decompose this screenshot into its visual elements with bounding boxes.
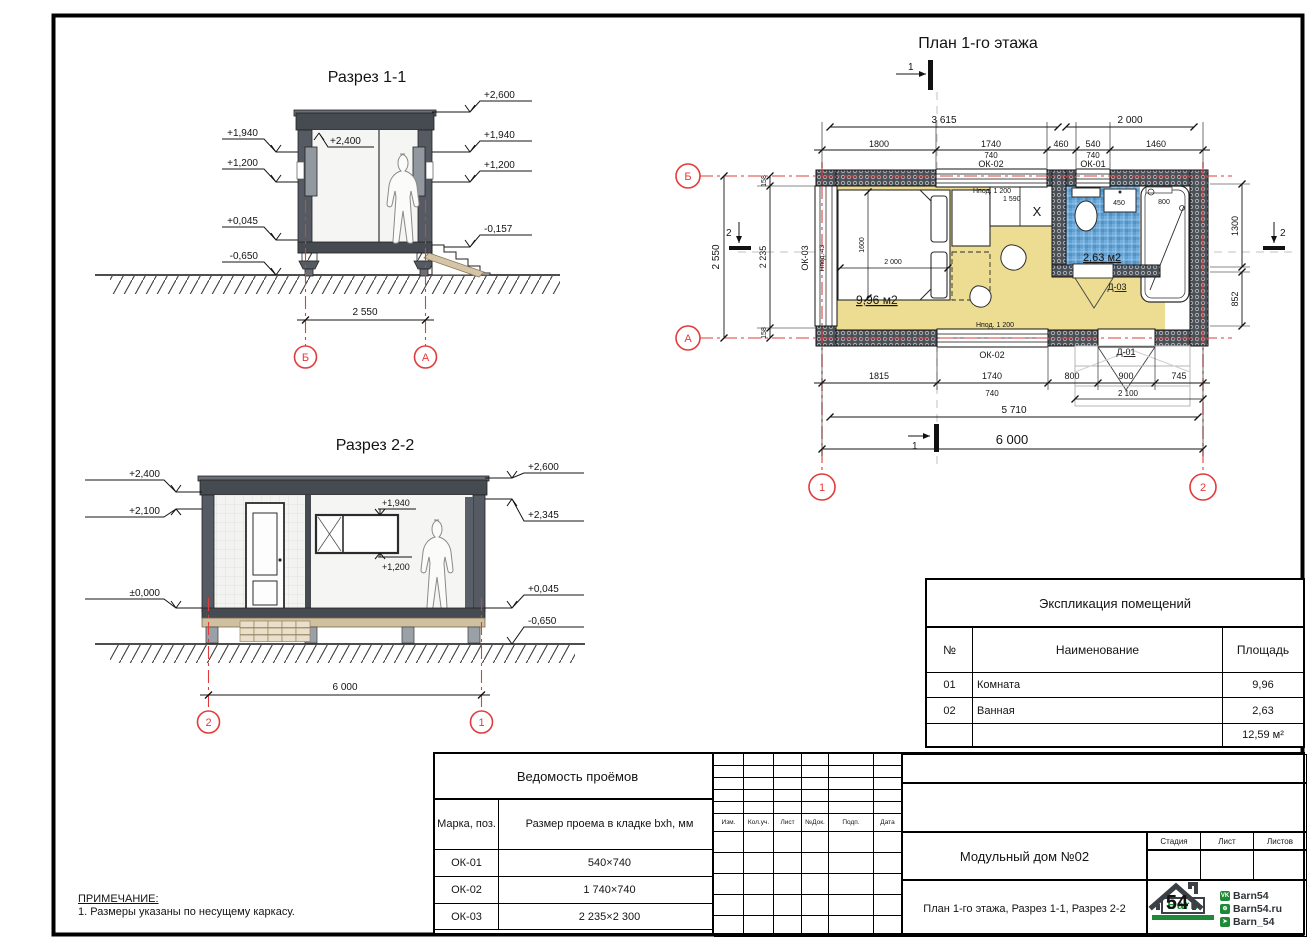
- rev-col-header: Изм.: [714, 814, 744, 832]
- elevation-marks-left: +1,940 +1,200 +0,045 -0,650: [222, 128, 298, 275]
- plan-dims-top: 3 615 2 000 1800 1740 460 540 1460 740 7…: [814, 115, 1210, 169]
- elevation-mark: +2,600: [528, 462, 559, 473]
- col-header-number: №: [927, 628, 973, 673]
- elevation-mark: +2,400: [129, 469, 160, 480]
- dim-label: 800: [1064, 371, 1079, 381]
- dim-label: 2 000: [884, 259, 902, 266]
- axis-label: А: [684, 333, 692, 345]
- elevation-mark: +0,045: [227, 216, 258, 227]
- section-2-2-title: Разрез 2-2: [336, 437, 415, 454]
- elevation-mark: +1,940: [484, 130, 515, 141]
- globe-icon: ⊕: [1220, 904, 1230, 914]
- elevation-mark: +2,100: [129, 506, 160, 517]
- note-title: ПРИМЕЧАНИЕ:: [78, 893, 295, 905]
- door-mark: Д-03: [1107, 282, 1126, 292]
- dim-label: 6 000: [996, 432, 1029, 447]
- dim-label: 158: [761, 327, 768, 339]
- house-logo-icon: 54: [1148, 881, 1204, 911]
- table-cell: 9,96: [1223, 673, 1303, 698]
- table-cell: 1 740×740: [499, 877, 720, 904]
- telegram-icon: ➤: [1220, 917, 1230, 927]
- dim-label: 1600: [859, 237, 866, 253]
- cut-marker-label: 1: [912, 441, 918, 452]
- social-handle: Barn_54: [1233, 916, 1274, 928]
- dim-label: 158: [761, 175, 768, 187]
- openings-title: Ведомость проёмов: [435, 754, 720, 800]
- dim-label: 1800: [869, 139, 889, 149]
- entrance-door-elevation: [246, 503, 284, 612]
- cut-marker-label: 1: [908, 62, 914, 73]
- cut-marker-label: 2: [726, 228, 732, 239]
- table-cell: 2 235×2 300: [499, 904, 720, 930]
- window-elevation: [316, 515, 398, 553]
- floor-plan-title: План 1-го этажа: [918, 35, 1038, 52]
- stage-value: [1148, 851, 1201, 879]
- dim-label: 1300: [1230, 216, 1240, 236]
- table-cell: [973, 724, 1223, 747]
- logo-strip: [1152, 915, 1214, 920]
- social-handle: Barn54: [1233, 890, 1269, 902]
- dim-label: 2 100: [1118, 389, 1139, 398]
- logo-cell: 54 Barn VKBarn54 ⊕Barn54.ru ➤Barn_54: [1147, 880, 1307, 937]
- room-area-label: 9,96 м2: [856, 293, 898, 307]
- dim-label: 740: [985, 389, 999, 398]
- sill-label: Hпод. 43: [819, 244, 826, 271]
- elevation-mark: +1,940: [227, 128, 258, 139]
- section-2-2-view: Разрез 2-2 +1,940 +1,200: [85, 437, 585, 735]
- dim-label: 540: [1085, 139, 1100, 149]
- sheet-count-value: [1254, 851, 1306, 879]
- elevation-marks-right: +2,600 +2,345 +0,045 -0,650: [485, 462, 584, 644]
- elevation-mark: +2,345: [528, 510, 559, 521]
- total-area-cell: 12,59 м²: [1223, 724, 1303, 747]
- note: ПРИМЕЧАНИЕ: 1. Размеры указаны по несуще…: [78, 893, 295, 918]
- elevation-marks-right: +2,600 +1,940 +1,200 -0,157: [432, 90, 532, 247]
- table-cell: [927, 724, 973, 747]
- dim-label: 1460: [1146, 139, 1166, 149]
- revision-grid: Изм. Кол.уч. Лист №Док. Подп. Дата: [714, 754, 902, 937]
- col-header-size: Размер проема в кладке bxh, мм: [499, 800, 720, 850]
- dim-label: 2 550: [352, 307, 377, 318]
- sill-label: Hпод. 1 200: [973, 188, 1011, 195]
- sink: 450: [1104, 189, 1136, 212]
- openings-table: Ведомость проёмов Марка, поз. Размер про…: [433, 752, 722, 935]
- chair: [1001, 245, 1026, 270]
- dim-label: 852: [1230, 291, 1240, 306]
- elevation-mark: -0,157: [484, 224, 513, 235]
- table-cell: 01: [927, 673, 973, 698]
- plan-dims-left: 2 550 158 2 235 158 ОК-03 Hпод. 43: [711, 173, 826, 342]
- elevation-marks-left: +2,400 +2,100 ±0,000: [85, 469, 202, 608]
- window-mark: ОК-02: [979, 350, 1004, 360]
- project-name: Модульный дом №02: [902, 832, 1147, 880]
- window-mark: ОК-01: [1080, 159, 1105, 169]
- sheet-name: План 1-го этажа, Разрез 1-1, Разрез 2-2: [902, 880, 1147, 937]
- col-header-name: Наименование: [973, 628, 1223, 673]
- section-1-1-view: Разрез 1-1 +1,940 +1,200 +0,045 -0,650 +…: [95, 69, 560, 368]
- dim-label: 800: [1158, 199, 1170, 206]
- rev-col-header: Лист: [774, 814, 802, 832]
- room-area-label: 2,63 м2: [1083, 252, 1121, 264]
- dim-label: 900: [1118, 371, 1133, 381]
- axis-label: Б: [684, 171, 691, 183]
- drawing-sheet: Разрез 1-1 +1,940 +1,200 +0,045 -0,650 +…: [0, 0, 1308, 942]
- axis-label: 2: [205, 717, 211, 729]
- sheet-number-value: [1201, 851, 1254, 879]
- bed: [838, 190, 950, 300]
- table-cell: ОК-01: [435, 850, 499, 877]
- bath-door-opening: [1073, 264, 1113, 278]
- dim-label: 1740: [981, 139, 1001, 149]
- axis-label: А: [422, 352, 430, 364]
- dim-label: 5 710: [1001, 405, 1026, 416]
- sill-label: Hпод. 1 200: [976, 322, 1014, 329]
- plan-dims-bottom: 1815 1740 800 900 745 740 2 100 5 710 6 …: [814, 348, 1210, 456]
- dim-label: 2 235: [758, 246, 768, 269]
- window-edge-left: [305, 147, 317, 196]
- elevation-mark: +2,600: [484, 90, 515, 101]
- dim-label: 1815: [869, 371, 889, 381]
- axis-label: 2: [1200, 482, 1206, 494]
- sheet-number-header: Лист: [1201, 833, 1254, 849]
- col-header-mark: Марка, поз.: [435, 800, 499, 850]
- stage-header: Стадия: [1148, 833, 1201, 849]
- appliance-x-mark: X: [1033, 204, 1042, 219]
- logo-number: 54: [1166, 892, 1189, 911]
- chair: [970, 286, 991, 307]
- dim-label: 6 000: [332, 682, 357, 693]
- plan-dims-right: 1300 852: [1210, 184, 1250, 326]
- elevation-mark: +1,940: [382, 498, 410, 508]
- table-cell: ОК-03: [435, 904, 499, 930]
- height-label: 1 590: [1003, 196, 1021, 203]
- title-block: Изм. Кол.уч. Лист №Док. Подп. Дата Модул…: [712, 752, 1305, 935]
- wardrobe: [952, 190, 990, 246]
- rev-col-header: Дата: [874, 814, 902, 832]
- section-1-1-title: Разрез 1-1: [328, 69, 407, 86]
- floor-plan-view: План 1-го этажа 1600 2 000 X Hпод. 1 200…: [676, 35, 1292, 500]
- sheet-count-header: Листов: [1254, 833, 1306, 849]
- dim-label: 745: [1171, 371, 1186, 381]
- rev-col-header: Подп.: [829, 814, 874, 832]
- cut-marker-label: 2: [1280, 228, 1286, 239]
- dim-label: 1740: [982, 371, 1002, 381]
- table-cell: 540×740: [499, 850, 720, 877]
- window-mark: ОК-03: [800, 245, 810, 270]
- dim-label: 3 615: [931, 115, 956, 126]
- elevation-mark: +1,200: [382, 562, 410, 572]
- note-text: 1. Размеры указаны по несущему каркасу.: [78, 906, 295, 918]
- elevation-mark: -0,650: [230, 251, 259, 262]
- window-mark: ОК-02: [978, 159, 1003, 169]
- rev-col-header: Кол.уч.: [744, 814, 774, 832]
- social-handle: Barn54.ru: [1233, 903, 1282, 915]
- dim-label: 2 000: [1117, 115, 1142, 126]
- door-mark: Д-01: [1116, 347, 1135, 357]
- table-cell: ОК-02: [435, 877, 499, 904]
- vk-icon: VK: [1220, 891, 1230, 901]
- explication-title: Экспликация помещений: [927, 580, 1303, 628]
- elevation-mark: +2,400: [330, 136, 361, 147]
- lumber-stack: [240, 621, 310, 642]
- elevation-mark: -0,650: [528, 616, 557, 627]
- table-cell: Комната: [973, 673, 1223, 698]
- table-cell: 2,63: [1223, 698, 1303, 724]
- axis-label: 1: [819, 482, 825, 494]
- axis-label: Б: [302, 352, 309, 364]
- table-cell: 02: [927, 698, 973, 724]
- rev-col-header: №Док.: [802, 814, 829, 832]
- col-header-area: Площадь: [1223, 628, 1303, 673]
- elevation-mark: ±0,000: [129, 588, 160, 599]
- elevation-mark: +0,045: [528, 584, 559, 595]
- elevation-mark: +1,200: [227, 158, 258, 169]
- table-cell: Ванная: [973, 698, 1223, 724]
- dim-label: 450: [1113, 200, 1125, 207]
- shower-bath: 800: [1141, 186, 1189, 302]
- dim-label: 460: [1053, 139, 1068, 149]
- explication-table: Экспликация помещений № Наименование Пло…: [925, 578, 1305, 748]
- dim-label: 2 550: [711, 244, 722, 269]
- axis-label: 1: [478, 717, 484, 729]
- elevation-mark: +1,200: [484, 160, 515, 171]
